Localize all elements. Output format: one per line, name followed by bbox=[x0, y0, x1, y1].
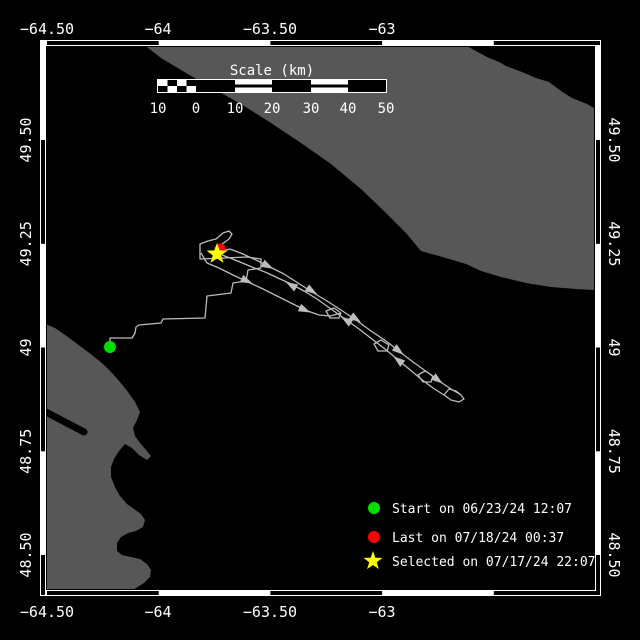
scalebar-label: 0 bbox=[192, 101, 200, 117]
scalebar-label: 10 bbox=[150, 101, 167, 117]
axis-label-top: −64.50 bbox=[20, 20, 74, 38]
axis-label-top: −64 bbox=[144, 20, 171, 38]
axis-label-left: 48.50 bbox=[17, 532, 35, 577]
axis-label-right: 49 bbox=[605, 338, 623, 356]
axis-label-right: 49.50 bbox=[605, 117, 623, 162]
axis-label-bottom: −63 bbox=[368, 603, 395, 621]
start-position-marker[interactable] bbox=[104, 341, 116, 353]
scalebar-bar bbox=[158, 80, 387, 93]
axis-label-left: 49.25 bbox=[17, 221, 35, 266]
legend-label-selected: Selected on 07/17/24 22:07 bbox=[392, 555, 596, 570]
map-viewport: Scale (km) 10 0 10 20 30 40 50 −64.50 −6… bbox=[0, 0, 640, 640]
axis-label-right: 48.50 bbox=[605, 532, 623, 577]
track-map[interactable]: Scale (km) 10 0 10 20 30 40 50 −64.50 −6… bbox=[0, 0, 640, 640]
axis-label-right: 48.75 bbox=[605, 429, 623, 474]
axis-label-left: 49 bbox=[17, 338, 35, 356]
axis-label-top: −63.50 bbox=[243, 20, 297, 38]
axis-label-bottom: −64.50 bbox=[20, 603, 74, 621]
legend-marker-icon bbox=[368, 531, 380, 543]
legend-label-last: Last on 07/18/24 00:37 bbox=[392, 531, 564, 546]
scalebar-label: 10 bbox=[227, 101, 244, 117]
legend-marker-icon bbox=[368, 502, 380, 514]
axis-label-top: −63 bbox=[368, 20, 395, 38]
axis-label-right: 49.25 bbox=[605, 221, 623, 266]
scalebar-label: 20 bbox=[264, 101, 281, 117]
axis-label-bottom: −64 bbox=[144, 603, 171, 621]
axis-label-left: 49.50 bbox=[17, 117, 35, 162]
scalebar-label: 40 bbox=[340, 101, 357, 117]
scalebar-label: 50 bbox=[378, 101, 395, 117]
scalebar-title: Scale (km) bbox=[230, 63, 314, 79]
scalebar-label: 30 bbox=[303, 101, 320, 117]
legend-label-start: Start on 06/23/24 12:07 bbox=[392, 502, 572, 517]
axis-label-left: 48.75 bbox=[17, 429, 35, 474]
axis-label-bottom: −63.50 bbox=[243, 603, 297, 621]
